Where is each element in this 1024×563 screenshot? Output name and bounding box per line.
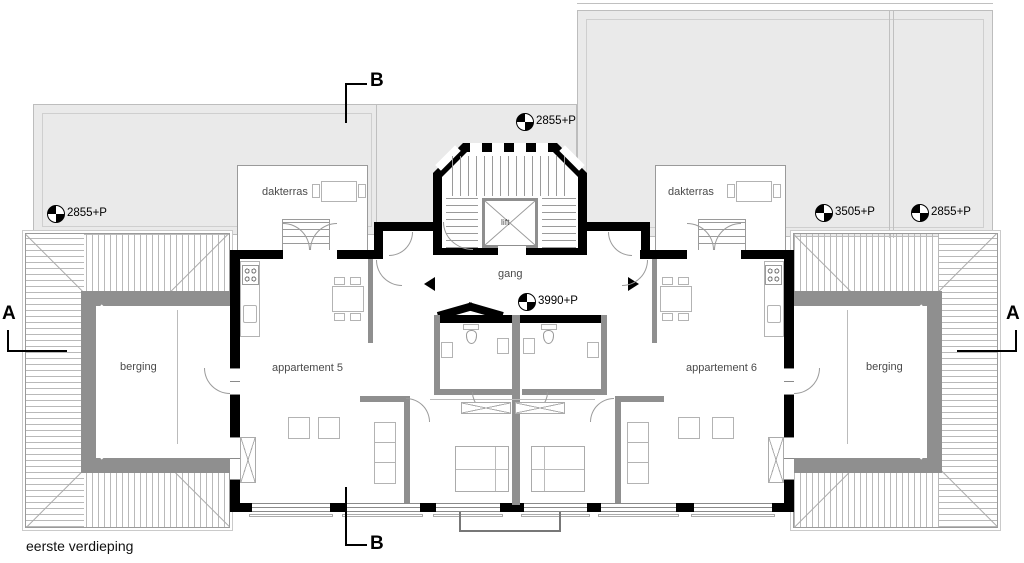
roof-divider-line — [889, 11, 890, 238]
section-line — [1015, 330, 1017, 352]
level-value: 3505+P — [835, 206, 875, 218]
roof-edge-line — [376, 105, 377, 236]
window — [536, 143, 548, 152]
room-label-gang: gang — [498, 268, 522, 280]
window-sill — [249, 514, 333, 517]
sofa — [627, 422, 649, 484]
floor-plan-canvas: lift — [0, 0, 1024, 563]
window — [492, 143, 504, 152]
level-value: 2855+P — [931, 206, 971, 218]
door-opening — [283, 250, 337, 259]
window — [436, 503, 500, 512]
level-value: 3990+P — [538, 295, 578, 307]
section-marker-b-top: B — [370, 70, 384, 92]
stairs-upper-flight — [452, 156, 570, 196]
section-line — [7, 330, 9, 352]
stove — [242, 265, 259, 285]
nook-line — [430, 399, 514, 400]
section-marker-b-bottom: B — [370, 533, 384, 555]
hatch-band — [26, 234, 84, 527]
dining-chair — [662, 313, 673, 321]
stairs-right-flight — [542, 198, 576, 248]
hall-wall — [652, 259, 657, 343]
terrace-table — [736, 181, 772, 202]
dining-chair — [350, 277, 361, 285]
dining-table — [332, 286, 364, 312]
dining-table — [660, 286, 692, 312]
window — [601, 503, 676, 512]
dining-chair — [678, 277, 689, 285]
level-value: 2855+P — [536, 115, 576, 127]
window-sill — [691, 514, 775, 517]
room-label-apartment-5: appartement 5 — [272, 362, 343, 374]
section-marker-a-left: A — [2, 303, 16, 325]
wall-step-right — [583, 222, 650, 231]
window — [230, 437, 240, 480]
section-line — [345, 83, 367, 85]
washbasin — [441, 342, 453, 358]
dining-chair — [334, 277, 345, 285]
direction-arrow-left-icon — [424, 277, 435, 291]
kitchen-sink — [243, 305, 257, 323]
window — [252, 503, 330, 512]
bed — [455, 446, 509, 492]
window — [345, 503, 420, 512]
dining-chair — [662, 277, 673, 285]
window — [470, 143, 482, 152]
wall-step-right — [641, 222, 650, 259]
nook-line — [511, 399, 595, 400]
bathroom-wall — [434, 315, 440, 395]
window — [230, 368, 240, 395]
armchair — [288, 417, 310, 439]
section-line — [345, 487, 347, 546]
door-opening — [498, 246, 526, 255]
dining-chair — [350, 313, 361, 321]
bed — [531, 446, 585, 492]
wall-step-left — [374, 222, 441, 231]
armchair — [318, 417, 340, 439]
shelf-line — [177, 310, 178, 444]
armchair — [678, 417, 700, 439]
section-line — [345, 544, 367, 546]
dining-chair — [334, 313, 345, 321]
window — [524, 503, 587, 512]
window — [694, 503, 772, 512]
door-opening — [687, 250, 741, 259]
window — [784, 437, 794, 480]
armchair — [712, 417, 734, 439]
room-label-berging-right: berging — [866, 361, 903, 373]
room-label-dakterras-right: dakterras — [668, 186, 714, 198]
level-marker-icon — [911, 204, 929, 222]
hall-wall — [368, 259, 373, 343]
cupboard — [240, 437, 256, 483]
stove — [765, 265, 782, 285]
dining-chair — [678, 313, 689, 321]
hip-line — [793, 234, 852, 293]
drawing-title: eerste verdieping — [26, 538, 133, 554]
level-marker-icon — [815, 204, 833, 222]
terrace-chair — [773, 184, 781, 198]
roof-divider-line — [893, 11, 894, 238]
room-label-lift: lift — [501, 217, 510, 227]
section-line — [7, 350, 67, 352]
bedroom-wall — [615, 396, 621, 503]
hip-line — [170, 233, 229, 292]
hatch-band — [939, 234, 997, 527]
wardrobe — [461, 402, 511, 414]
level-marker-icon — [518, 293, 536, 311]
bedroom-wall — [360, 396, 407, 402]
section-line — [345, 83, 347, 123]
section-marker-a-right: A — [1006, 303, 1020, 325]
wall-step-left — [374, 222, 383, 259]
wall-gang — [437, 315, 604, 323]
cupboard — [768, 437, 784, 483]
level-marker-icon — [47, 205, 65, 223]
fixture — [497, 338, 509, 354]
lift-cross-icon — [485, 201, 535, 245]
room-label-dakterras-left: dakterras — [262, 186, 308, 198]
level-marker-icon — [516, 113, 534, 131]
window-sill — [598, 514, 679, 517]
terrace-chair — [312, 184, 320, 198]
hip-line — [171, 468, 230, 527]
level-value: 2855+P — [67, 207, 107, 219]
section-line — [957, 350, 1017, 352]
sofa — [374, 422, 396, 484]
hip-line — [794, 469, 853, 528]
terrace-chair — [358, 184, 366, 198]
room-label-berging-left: berging — [120, 361, 157, 373]
balcony — [459, 512, 561, 532]
window — [514, 143, 526, 152]
window-sill — [342, 514, 423, 517]
kitchen-sink — [767, 305, 781, 323]
shelf-line — [847, 310, 848, 444]
fixture — [523, 338, 535, 354]
washbasin — [587, 342, 599, 358]
roof-outer-line — [577, 3, 993, 4]
lift-shaft: lift — [482, 198, 538, 248]
terrace-chair — [727, 184, 735, 198]
wardrobe — [515, 402, 565, 414]
window — [784, 368, 794, 395]
room-label-apartment-6: appartement 6 — [686, 362, 757, 374]
terrace-table — [321, 181, 357, 202]
bedroom-wall — [617, 396, 664, 402]
bathroom-wall — [601, 315, 607, 395]
